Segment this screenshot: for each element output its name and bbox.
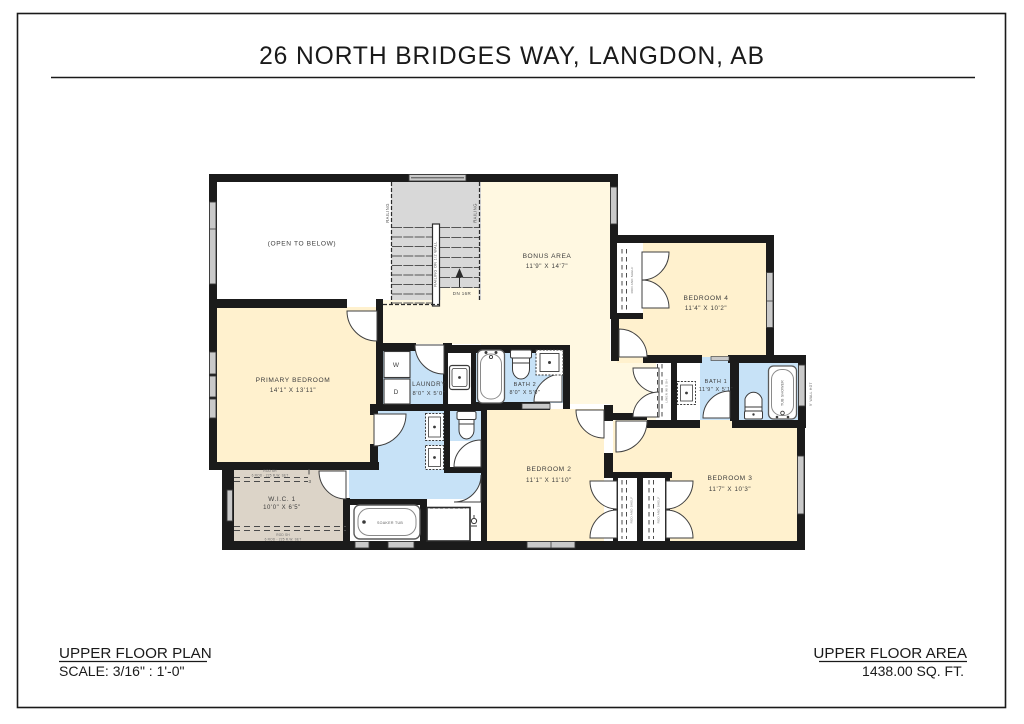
svg-text:1438.00 SQ. FT.: 1438.00 SQ. FT. (862, 663, 964, 679)
svg-text:ROD AND SHELF: ROD AND SHELF (657, 497, 661, 524)
svg-text:LINEN W/ 5 SH: LINEN W/ 5 SH (665, 379, 669, 402)
svg-text:10'0" X 6'5": 10'0" X 6'5" (263, 505, 301, 511)
svg-text:14'1" X 13'11": 14'1" X 13'11" (270, 387, 316, 394)
svg-text:UPPER FLOOR AREA: UPPER FLOOR AREA (813, 645, 967, 662)
svg-text:9' WALL HGT: 9' WALL HGT (809, 382, 813, 406)
svg-text:UPPER FLOOR PLAN: UPPER FLOOR PLAN (59, 645, 212, 662)
svg-text:RAILING: RAILING (473, 203, 478, 223)
svg-text:ROD AND SHELF: ROD AND SHELF (630, 267, 634, 294)
svg-text:SCALE: 3/16" : 1'-0": SCALE: 3/16" : 1'-0" (59, 663, 184, 679)
svg-text:TUB SHOWER: TUB SHOWER (781, 380, 785, 406)
svg-text:ROD AND SHELF: ROD AND SHELF (630, 497, 634, 524)
svg-text:6 ROD - 225 R.W. SET: 6 ROD - 225 R.W. SET (265, 538, 302, 542)
svg-text:6 ROD - 225 R.W. SET: 6 ROD - 225 R.W. SET (252, 474, 289, 478)
svg-text:26 NORTH BRIDGES WAY, LANGDON,: 26 NORTH BRIDGES WAY, LANGDON, AB (259, 43, 765, 70)
svg-text:(OPEN TO BELOW): (OPEN TO BELOW) (268, 241, 336, 248)
svg-text:BONUS AREA: BONUS AREA (523, 253, 572, 260)
svg-text:ROD SH: ROD SH (276, 533, 290, 537)
svg-text:BATH 2: BATH 2 (514, 382, 537, 388)
svg-text:ROD 6H: ROD 6H (263, 469, 277, 473)
svg-text:BEDROOM 2: BEDROOM 2 (527, 466, 572, 473)
svg-text:D: D (394, 389, 399, 396)
svg-text:BEDROOM 3: BEDROOM 3 (708, 475, 753, 482)
svg-text:W: W (393, 362, 400, 369)
svg-text:RAILING ON 1/2 WALL: RAILING ON 1/2 WALL (434, 241, 438, 286)
svg-text:DN 16R: DN 16R (453, 291, 472, 296)
svg-text:8'0" X 5'0": 8'0" X 5'0" (509, 390, 540, 396)
svg-text:BEDROOM 4: BEDROOM 4 (684, 295, 729, 302)
svg-text:SOAKER TUB: SOAKER TUB (377, 521, 403, 525)
svg-text:11'4" X 10'2": 11'4" X 10'2" (685, 305, 727, 312)
svg-text:11'9" X 14'7": 11'9" X 14'7" (526, 263, 568, 270)
svg-text:W.I.C. 1: W.I.C. 1 (268, 496, 296, 503)
svg-text:8'0" X 5'0": 8'0" X 5'0" (413, 391, 446, 397)
svg-text:11'9" X 5'1": 11'9" X 5'1" (699, 387, 733, 393)
svg-text:11'7" X 10'3": 11'7" X 10'3" (709, 486, 751, 493)
svg-text:PRIMARY BEDROOM: PRIMARY BEDROOM (256, 377, 331, 384)
svg-text:BATH 1: BATH 1 (705, 379, 728, 385)
svg-text:LAUNDRY: LAUNDRY (412, 381, 446, 388)
svg-text:RAILING: RAILING (385, 203, 390, 223)
svg-text:11'1" X 11'10": 11'1" X 11'10" (526, 477, 572, 484)
